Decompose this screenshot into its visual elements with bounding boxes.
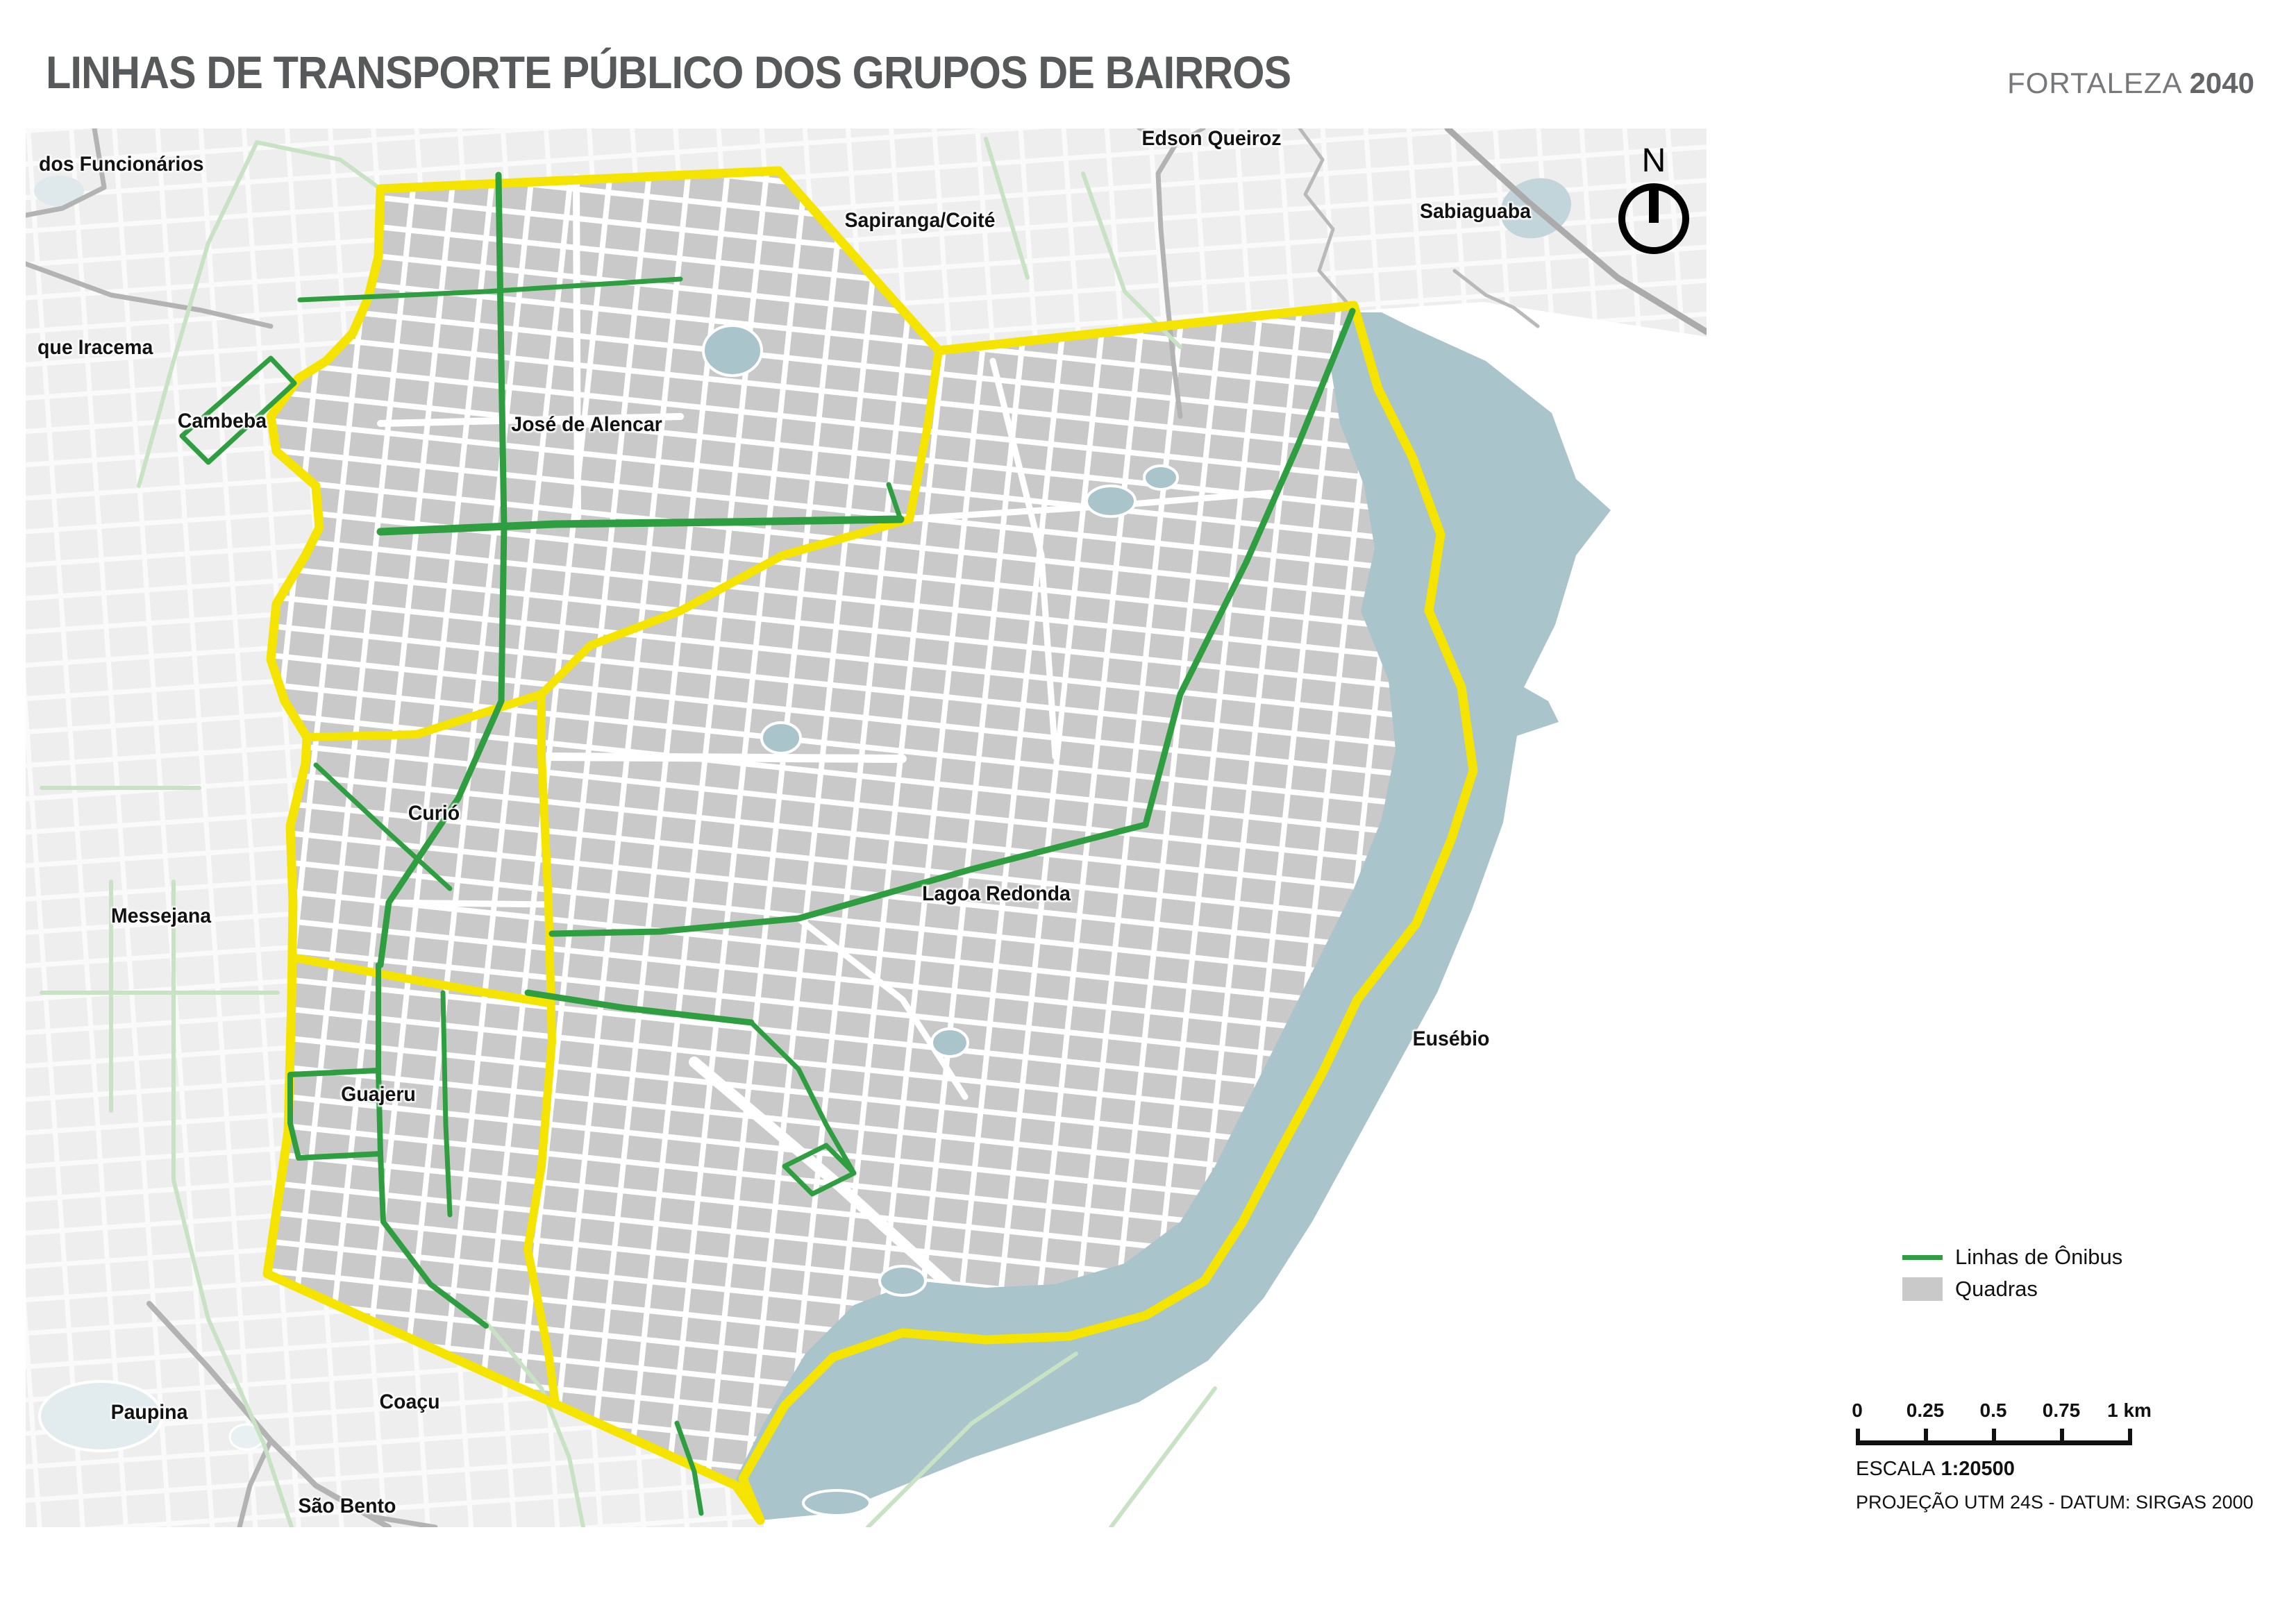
map-label: Edson Queiroz	[1141, 128, 1281, 151]
scalebar-tick-label: 0.75	[2043, 1399, 2081, 1422]
scalebar-tickmark	[2128, 1429, 2132, 1445]
legend-label: Linhas de Ônibus	[1955, 1245, 2122, 1270]
legend-item: Linhas de Ônibus	[1902, 1241, 2122, 1273]
map-canvas: N dos Funcionáriosque IracemaCambebaJosé…	[26, 128, 1707, 1527]
scalebar-tickmark	[2060, 1429, 2064, 1445]
page-title: LINHAS DE TRANSPORTE PÚBLICO DOS GRUPOS …	[46, 46, 1291, 99]
pond	[762, 723, 801, 753]
projection-text: PROJEÇÃO UTM 24S - DATUM: SIRGAS 2000	[1856, 1492, 2189, 1513]
map-label: Guajeru	[341, 1083, 416, 1107]
north-label: N	[1642, 142, 1666, 179]
legend-item: Quadras	[1902, 1273, 2122, 1305]
scalebar-tickmark	[1856, 1429, 1860, 1445]
map-label: Coaçu	[379, 1390, 439, 1414]
brand-year: 2040	[2190, 67, 2254, 99]
map-label: Eusébio	[1413, 1027, 1490, 1051]
legend-label: Quadras	[1955, 1277, 2038, 1302]
map-label: Cambeba	[178, 410, 267, 433]
pond	[703, 326, 762, 376]
scalebar-tick-label: 1 km	[2107, 1399, 2152, 1422]
brand: FORTALEZA2040	[2007, 67, 2254, 100]
map-graphic: N	[26, 128, 1707, 1527]
brand-name: FORTALEZA	[2007, 67, 2183, 99]
legend: Linhas de ÔnibusQuadras	[1902, 1241, 2122, 1305]
map-label: Curió	[408, 802, 460, 825]
map-label: dos Funcionários	[39, 153, 204, 176]
scale-value: 1:20500	[1941, 1458, 2014, 1480]
scalebar-tick-labels: 00.250.50.751 km	[1856, 1399, 2189, 1423]
map-label: Messejana	[111, 905, 211, 928]
map-label: Sapiranga/Coité	[845, 209, 996, 233]
pond	[880, 1266, 925, 1295]
scalebar-bar	[1856, 1427, 2189, 1445]
map-label: que Iracema	[37, 336, 153, 360]
map-label: Paupina	[111, 1401, 188, 1424]
map-label: Lagoa Redonda	[922, 882, 1071, 906]
pond	[803, 1490, 870, 1515]
scalebar-tickmark	[1992, 1429, 1996, 1445]
pond	[932, 1029, 968, 1057]
scalebar-tick-label: 0.25	[1907, 1399, 1945, 1422]
pond	[1087, 486, 1135, 516]
map-label: São Bento	[299, 1495, 396, 1518]
pond	[1144, 466, 1178, 489]
scale-text: ESCALA1:20500	[1856, 1458, 2189, 1481]
scalebar-tickmark	[1924, 1429, 1928, 1445]
map-poster-page: LINHAS DE TRANSPORTE PÚBLICO DOS GRUPOS …	[0, 0, 2296, 1623]
map-label: José de Alencar	[511, 413, 662, 437]
scalebar-tick-label: 0	[1852, 1399, 1863, 1422]
legend-box-swatch	[1902, 1277, 1943, 1301]
scale-label: ESCALA	[1856, 1458, 1935, 1480]
scalebar-tick-label: 0.5	[1980, 1399, 2007, 1422]
scalebar: 00.250.50.751 km ESCALA1:20500 PROJEÇÃO …	[1856, 1399, 2189, 1513]
map-label: Sabiaguaba	[1420, 200, 1531, 224]
legend-line-swatch	[1902, 1255, 1943, 1260]
